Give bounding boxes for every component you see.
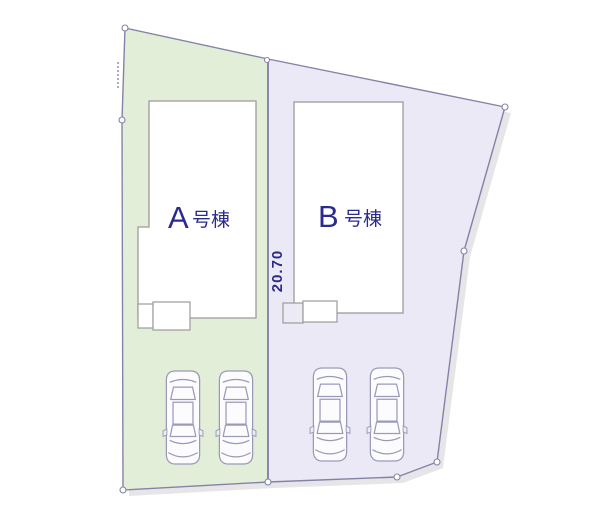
building-b-label-letter: B <box>318 199 339 234</box>
dimension-label: 20.70 <box>269 250 286 293</box>
building-a-porch-step <box>138 304 153 328</box>
car-icon <box>163 371 203 464</box>
building-a-label-suffix: 号棟 <box>192 209 230 231</box>
building-b-porch <box>303 301 337 322</box>
building-b-porch-step <box>283 303 303 323</box>
site-plan-drawing: A 号棟 B 号棟 20.70 <box>0 0 600 512</box>
building-b-footprint <box>283 102 403 323</box>
building-a-porch <box>153 302 190 330</box>
car-icon <box>216 371 256 464</box>
building-a-label-letter: A <box>168 200 189 235</box>
building-b-label-suffix: 号棟 <box>344 208 382 230</box>
car-icon <box>310 368 350 461</box>
car-icon <box>367 368 407 461</box>
site-plan-canvas: A 号棟 B 号棟 20.70 <box>0 0 600 512</box>
